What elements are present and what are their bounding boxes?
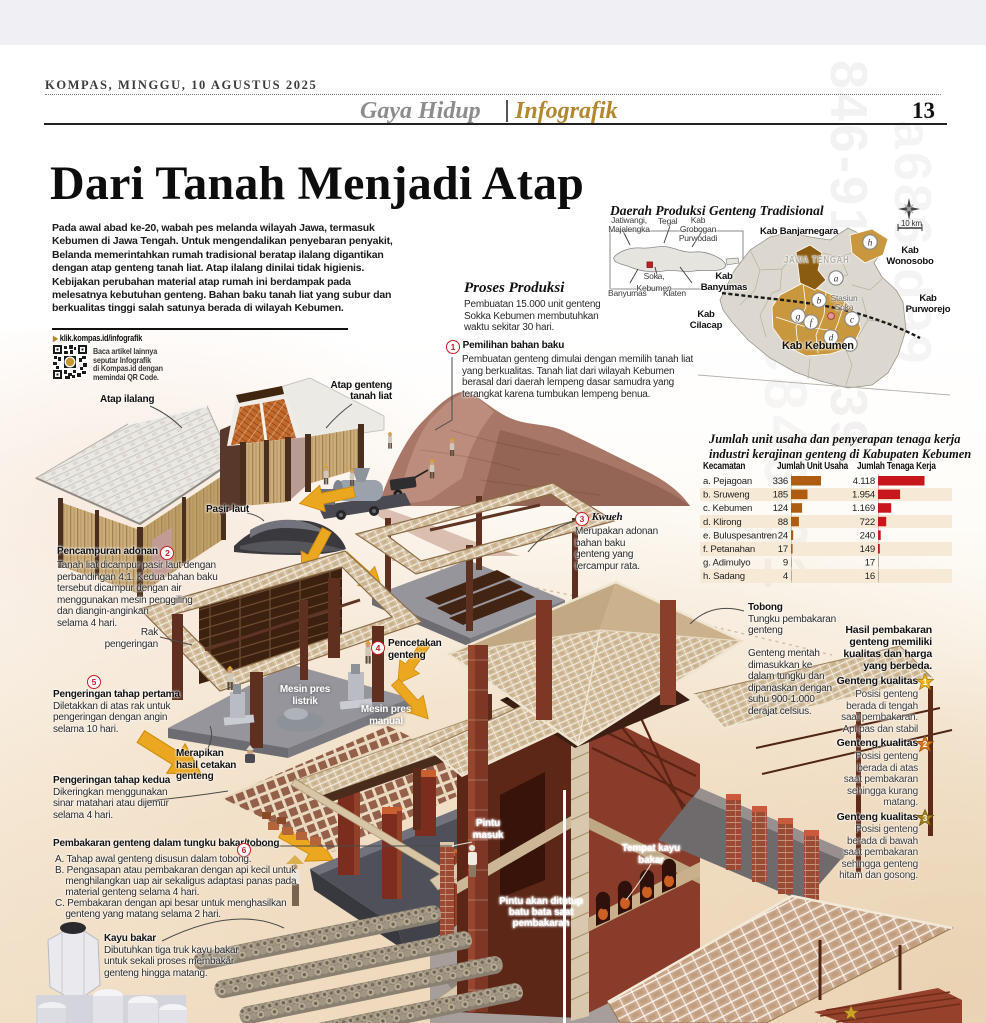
svg-text:3: 3 [923,814,928,823]
svg-text:h. Sadang: h. Sadang [703,571,745,582]
svg-text:d. Klirong: d. Klirong [703,517,742,528]
svg-text:a. Pejagoan: a. Pejagoan [703,476,752,487]
svg-text:a: a [834,275,839,285]
svg-text:1.169: 1.169 [852,503,875,514]
svg-text:1: 1 [923,678,928,687]
svg-text:g. Adimulyo: g. Adimulyo [703,558,750,569]
svg-text:16: 16 [865,571,875,582]
svg-text:88: 88 [778,517,788,528]
svg-text:f. Petanahan: f. Petanahan [703,544,755,555]
svg-text:2: 2 [923,740,928,749]
svg-text:17: 17 [778,544,788,555]
svg-text:h: h [868,239,873,249]
svg-text:124: 124 [773,503,789,514]
svg-text:g: g [796,313,801,323]
svg-text:149: 149 [860,544,875,555]
svg-text:17: 17 [865,558,875,569]
svg-text:4.118: 4.118 [853,476,875,487]
svg-text:185: 185 [773,490,788,501]
svg-text:4: 4 [783,571,789,582]
svg-text:1.954: 1.954 [852,490,876,501]
svg-text:b: b [817,297,822,307]
svg-text:722: 722 [860,517,875,528]
svg-text:c. Kebumen: c. Kebumen [703,503,752,514]
svg-text:e. Buluspesantren: e. Buluspesantren [703,530,777,541]
svg-text:b. Sruweng: b. Sruweng [703,490,750,501]
svg-text:240: 240 [860,530,875,541]
svg-text:9: 9 [783,558,788,569]
svg-text:24: 24 [778,530,789,541]
svg-text:336: 336 [773,476,788,487]
